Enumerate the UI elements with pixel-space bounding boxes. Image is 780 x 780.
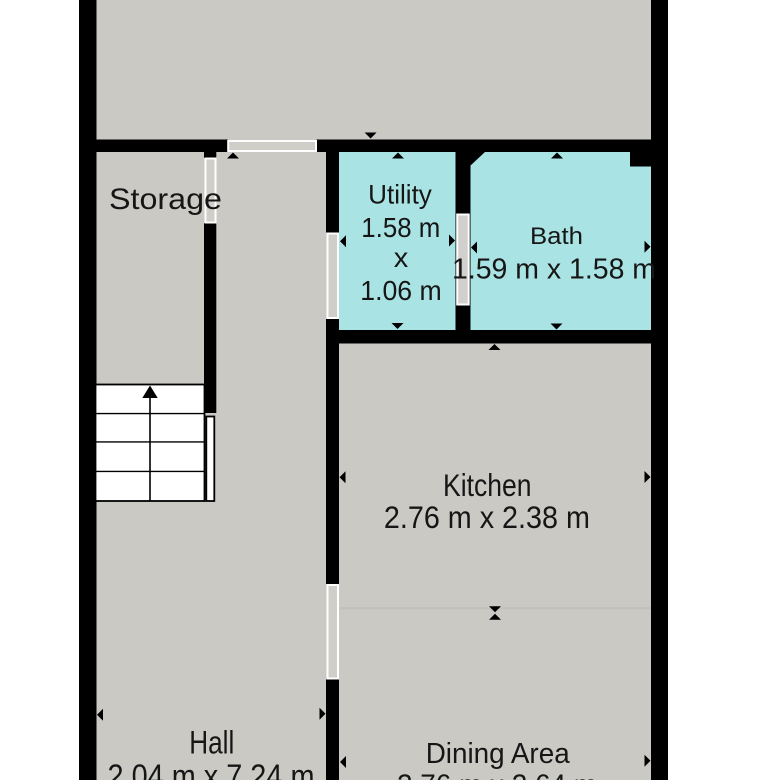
svg-text:Hall: Hall (189, 725, 234, 761)
svg-text:Kitchen: Kitchen (443, 468, 532, 503)
svg-text:Bath: Bath (530, 223, 583, 250)
svg-text:1.06 m: 1.06 m (360, 275, 442, 306)
svg-text:Utility: Utility (368, 179, 432, 209)
svg-text:x: x (394, 242, 409, 273)
svg-text:1.59 m x 1.58 m: 1.59 m x 1.58 m (452, 254, 656, 286)
svg-text:Storage: Storage (109, 183, 222, 216)
svg-text:2.04 m x 7.24 m: 2.04 m x 7.24 m (108, 758, 315, 780)
svg-text:2.76 m x 2.38 m: 2.76 m x 2.38 m (384, 500, 590, 535)
svg-text:2.76 m x 2.64 m: 2.76 m x 2.64 m (397, 770, 597, 780)
svg-text:1.58 m: 1.58 m (361, 212, 440, 243)
svg-text:Dining Area: Dining Area (426, 738, 570, 770)
